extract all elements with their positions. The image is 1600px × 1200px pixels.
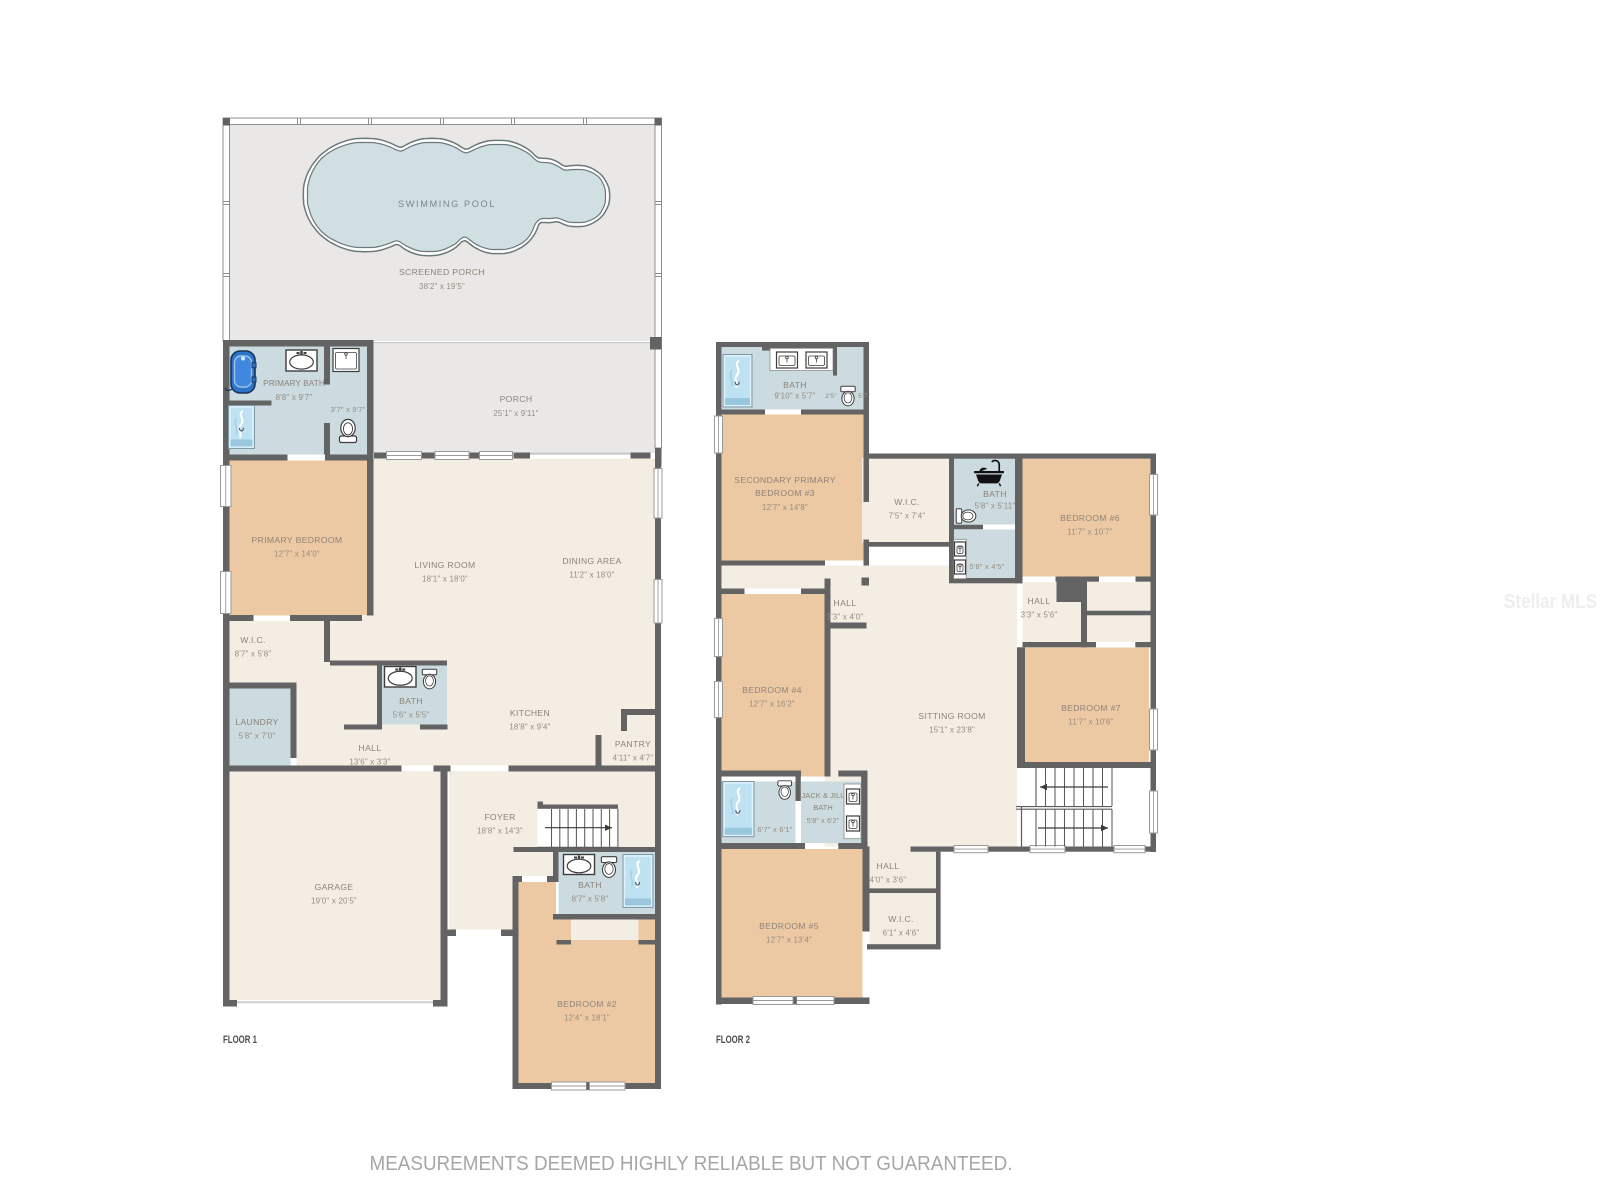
svg-text:4'0" x 3'6": 4'0" x 3'6"	[870, 876, 907, 885]
svg-text:HALL: HALL	[877, 861, 900, 871]
svg-text:12'7" x 14'0": 12'7" x 14'0"	[274, 550, 320, 559]
svg-text:SECONDARY PRIMARY: SECONDARY PRIMARY	[734, 475, 835, 485]
svg-text:9'10" x 5'7": 9'10" x 5'7"	[774, 392, 815, 401]
svg-text:MEASUREMENTS DEEMED HIGHLY REL: MEASUREMENTS DEEMED HIGHLY RELIABLE BUT …	[370, 1153, 1013, 1175]
svg-text:W.I.C.: W.I.C.	[894, 497, 920, 507]
svg-text:6'1" x 4'6": 6'1" x 4'6"	[883, 929, 920, 938]
svg-text:PRIMARY BEDROOM: PRIMARY BEDROOM	[252, 535, 343, 545]
svg-text:BATH: BATH	[783, 380, 807, 390]
svg-text:13'6" x 3'3": 13'6" x 3'3"	[349, 758, 390, 767]
svg-text:LIVING ROOM: LIVING ROOM	[414, 560, 475, 570]
svg-text:BEDROOM #6: BEDROOM #6	[1060, 513, 1120, 523]
svg-text:2'5": 2'5"	[825, 393, 837, 400]
svg-text:BATH: BATH	[813, 803, 833, 812]
svg-text:PORCH: PORCH	[500, 394, 533, 404]
svg-text:HALL: HALL	[1028, 596, 1051, 606]
svg-text:5'6" x 5'5": 5'6" x 5'5"	[393, 711, 430, 720]
svg-text:12'7" x 16'2": 12'7" x 16'2"	[749, 700, 795, 709]
svg-text:5'8" x 7'0": 5'8" x 7'0"	[239, 732, 276, 741]
svg-text:W.I.C.: W.I.C.	[240, 635, 266, 645]
svg-text:11'7" x 10'6": 11'7" x 10'6"	[1068, 718, 1113, 727]
svg-text:LAUNDRY: LAUNDRY	[235, 717, 278, 727]
svg-text:19'0" x 20'5": 19'0" x 20'5"	[311, 897, 357, 906]
svg-text:HALL: HALL	[834, 598, 857, 608]
svg-text:12'7" x 13'4": 12'7" x 13'4"	[766, 936, 812, 945]
svg-text:GARAGE: GARAGE	[315, 882, 354, 892]
svg-text:PRIMARY BATH: PRIMARY BATH	[263, 379, 325, 388]
svg-text:FLOOR 2: FLOOR 2	[716, 1034, 750, 1046]
svg-text:PANTRY: PANTRY	[615, 739, 651, 749]
svg-text:W.I.C.: W.I.C.	[888, 914, 914, 924]
svg-text:18'1" x 18'0": 18'1" x 18'0"	[422, 575, 468, 584]
svg-text:BEDROOM #7: BEDROOM #7	[1061, 703, 1121, 713]
svg-text:11'2" x 18'0": 11'2" x 18'0"	[569, 571, 614, 580]
svg-text:3'3" x 4'0": 3'3" x 4'0"	[827, 613, 864, 622]
svg-text:12'4" x 18'1": 12'4" x 18'1"	[564, 1014, 610, 1023]
svg-text:SITTING ROOM: SITTING ROOM	[918, 711, 985, 721]
svg-text:5'8" x 6'2": 5'8" x 6'2"	[807, 816, 840, 825]
svg-text:8'7" x 5'8": 8'7" x 5'8"	[235, 650, 272, 659]
svg-text:KITCHEN: KITCHEN	[510, 708, 550, 718]
svg-text:DINING AREA: DINING AREA	[562, 556, 621, 566]
svg-text:18'8" x 9'4": 18'8" x 9'4"	[509, 723, 550, 732]
svg-text:3'7" x 9'7": 3'7" x 9'7"	[331, 405, 366, 414]
svg-text:7'5" x 7'4": 7'5" x 7'4"	[889, 512, 926, 521]
svg-text:11'7" x 10'7": 11'7" x 10'7"	[1067, 528, 1112, 537]
svg-text:8'7" x 5'8": 8'7" x 5'8"	[572, 895, 609, 904]
svg-text:BATH: BATH	[399, 696, 423, 706]
svg-text:6'7" x 6'1": 6'7" x 6'1"	[758, 825, 793, 834]
svg-text:SCREENED PORCH: SCREENED PORCH	[399, 267, 485, 277]
svg-text:25'1" x 9'11": 25'1" x 9'11"	[493, 409, 538, 418]
svg-text:8'8" x 9'7": 8'8" x 9'7"	[276, 393, 313, 402]
svg-text:BEDROOM #5: BEDROOM #5	[759, 921, 819, 931]
svg-text:4'11" x 4'7": 4'11" x 4'7"	[613, 754, 654, 763]
svg-text:JACK & JILL: JACK & JILL	[802, 791, 845, 800]
svg-text:BEDROOM #3: BEDROOM #3	[755, 488, 815, 498]
svg-text:5'8" x 4'5": 5'8" x 4'5"	[970, 562, 1005, 571]
svg-text:HALL: HALL	[359, 743, 382, 753]
svg-text:15'1" x 23'8": 15'1" x 23'8"	[929, 726, 975, 735]
svg-text:BATH: BATH	[578, 880, 602, 890]
svg-text:SWIMMING POOL: SWIMMING POOL	[398, 199, 496, 209]
svg-text:BEDROOM #2: BEDROOM #2	[557, 999, 617, 1009]
svg-text:BATH: BATH	[983, 489, 1007, 499]
svg-text:BEDROOM #4: BEDROOM #4	[742, 685, 802, 695]
svg-text:FOYER: FOYER	[484, 812, 515, 822]
svg-text:12'7" x 14'8": 12'7" x 14'8"	[762, 503, 808, 512]
svg-text:Stellar MLS: Stellar MLS	[1504, 591, 1597, 613]
svg-text:3'3" x 5'6": 3'3" x 5'6"	[1021, 611, 1058, 620]
svg-text:FLOOR 1: FLOOR 1	[223, 1034, 257, 1046]
svg-text:18'8" x 14'3": 18'8" x 14'3"	[477, 827, 523, 836]
svg-text:5'8" x 5'11": 5'8" x 5'11"	[975, 502, 1016, 511]
svg-text:38'2" x 19'5": 38'2" x 19'5"	[419, 282, 465, 291]
svg-text:5'7": 5'7"	[858, 393, 870, 400]
